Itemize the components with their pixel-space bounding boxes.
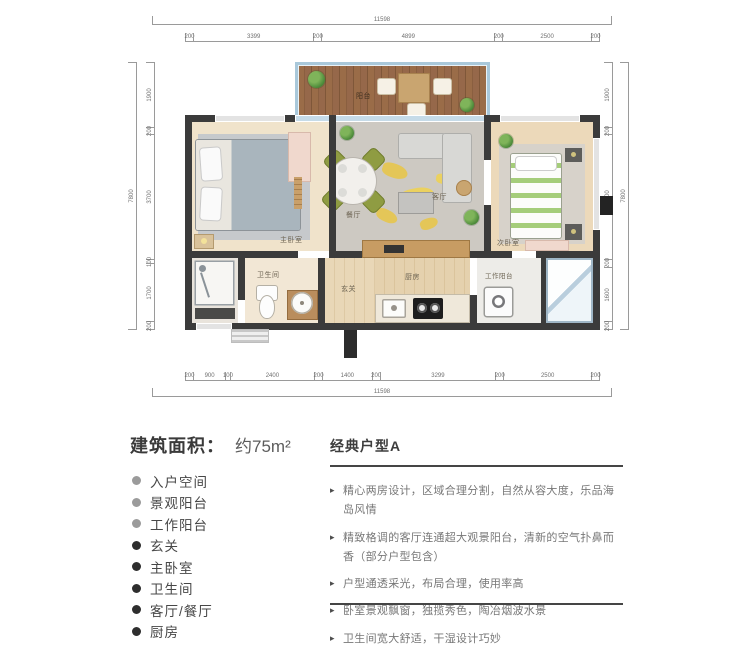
bullet-icon [132, 584, 141, 593]
nightstand-icon [565, 224, 582, 240]
bath-mat-icon [195, 308, 235, 319]
bullet-item: ▸卧室景观飘窗，独揽秀色，陶冶烟波水景 [330, 602, 623, 621]
outdoor-table-icon [398, 73, 430, 103]
list-item: 工作阳台 [132, 513, 213, 535]
floor-plan: 阳台 主卧室 [0, 0, 747, 420]
plant-icon [460, 98, 474, 112]
room-feature-list: 入户空间 景观阳台 工作阳台 玄关 主卧室 卫生间 客厅/餐厅 厨房 [132, 470, 213, 642]
wall-interior [318, 258, 325, 330]
room-label-dining: 餐厅 [346, 210, 361, 220]
wall-interior [185, 251, 298, 258]
wall-interior [329, 115, 336, 258]
room-balcony: 阳台 [295, 62, 490, 120]
bullet-text: 精致格调的客厅连通超大观景阳台，清新的空气扑鼻而香（部分户型包含） [343, 532, 614, 563]
entry-steps-icon [232, 330, 268, 342]
list-item: 入户空间 [132, 470, 213, 492]
bullet-item: ▸户型通透采光，布局合理，使用率高 [330, 575, 623, 594]
bullet-text: 卧室景观飘窗，独揽秀色，陶冶烟波水景 [343, 605, 546, 617]
unit-type-heading: 经典户型A [330, 436, 623, 467]
pillow-icon [200, 187, 222, 220]
wall-interior [536, 251, 600, 258]
coffee-table-icon [398, 192, 434, 214]
dresser-icon [525, 240, 569, 251]
list-item-label: 卫生间 [150, 578, 194, 598]
bullet-item: ▸精致格调的客厅连通超大观景阳台，清新的空气扑鼻而香（部分户型包含） [330, 529, 623, 568]
bullet-icon [132, 562, 141, 571]
plant-icon [464, 210, 479, 225]
bottom-divider [330, 603, 623, 605]
bullet-icon [132, 627, 141, 636]
arrow-bullet-icon: ▸ [330, 631, 335, 647]
window-icon [500, 115, 580, 122]
room-living-dining: 餐厅 客厅 [336, 122, 484, 251]
list-item: 卫生间 [132, 578, 213, 600]
toilet-icon [260, 296, 274, 318]
room-label-second: 次卧室 [497, 238, 520, 248]
wardrobe-icon [288, 132, 311, 182]
bullet-icon [132, 605, 141, 614]
shelf-icon [294, 177, 302, 209]
list-item: 主卧室 [132, 556, 213, 578]
sink-icon [291, 292, 313, 314]
list-item-label: 工作阳台 [150, 514, 208, 534]
wall-interior [470, 251, 512, 258]
corner-window-icon [546, 258, 593, 323]
shower-icon [196, 262, 233, 304]
room-hall: 玄关 [325, 258, 375, 323]
bed-icon [196, 140, 300, 230]
stove-icon [413, 298, 443, 319]
room-label-work-balcony: 工作阳台 [485, 270, 513, 280]
bullet-icon [132, 541, 141, 550]
list-item: 景观阳台 [132, 492, 213, 514]
room-bathroom: 卫生间 [245, 258, 318, 323]
bullet-text: 户型通透采光，布局合理，使用率高 [343, 578, 524, 590]
entry-wall-stub [344, 330, 357, 358]
wall-left [185, 115, 192, 330]
window-icon [593, 138, 600, 230]
room-shower [192, 258, 238, 323]
kitchen-counter-icon [362, 240, 470, 258]
nightstand-icon [565, 148, 582, 162]
room-kitchen: 厨房 [375, 258, 470, 323]
room-master-bedroom: 主卧室 [192, 122, 329, 251]
building-area-value: 约75m² [235, 432, 291, 457]
outdoor-cushion-icon [378, 79, 395, 94]
unit-type-card: 经典户型A ▸精心两房设计，区域合理分割，自然从容大度，乐品海岛风情 ▸精致格调… [330, 436, 623, 657]
list-item: 客厅/餐厅 [132, 599, 213, 621]
dining-table-icon [330, 158, 376, 204]
wall-bottom [185, 323, 600, 330]
pillow-icon [200, 147, 222, 180]
list-item-label: 玄关 [150, 535, 179, 555]
bullet-icon [132, 519, 141, 528]
arrow-bullet-icon: ▸ [330, 603, 335, 619]
bullet-text: 精心两房设计，区域合理分割，自然从容大度，乐品海岛风情 [343, 485, 614, 516]
arrow-bullet-icon: ▸ [330, 576, 335, 592]
bullet-icon [132, 476, 141, 485]
plant-icon [340, 126, 354, 140]
wall-interior [336, 251, 362, 258]
list-item-label: 入户空间 [150, 471, 208, 491]
room-second-bedroom: 次卧室 [491, 122, 593, 251]
sink-icon [382, 299, 406, 318]
room-label-bath: 卫生间 [257, 270, 280, 280]
list-item-label: 景观阳台 [150, 492, 208, 512]
wall-interior [238, 258, 245, 300]
list-item: 厨房 [132, 621, 213, 643]
wall-interior [484, 115, 491, 160]
pipe-shaft [600, 196, 613, 215]
arrow-bullet-icon: ▸ [330, 530, 335, 546]
window-icon [196, 323, 232, 330]
room-label-living: 客厅 [432, 192, 447, 202]
list-item-label: 厨房 [150, 621, 179, 641]
plant-icon [499, 134, 513, 148]
washer-icon [485, 288, 512, 316]
arrow-bullet-icon: ▸ [330, 483, 335, 499]
window-icon [215, 115, 285, 122]
nightstand-icon [194, 234, 214, 249]
bullet-text: 卫生间宽大舒适，干湿设计巧妙 [343, 633, 501, 645]
balcony-door-window-icon [295, 115, 490, 122]
room-label-master: 主卧室 [280, 235, 303, 245]
outdoor-cushion-icon [434, 79, 451, 94]
bed-icon [511, 154, 561, 238]
list-item: 玄关 [132, 535, 213, 557]
list-item-label: 主卧室 [150, 557, 194, 577]
room-work-balcony: 工作阳台 [477, 258, 541, 323]
room-label-balcony: 阳台 [356, 91, 371, 101]
unit-type-bullets: ▸精心两房设计，区域合理分割，自然从容大度，乐品海岛风情 ▸精致格调的客厅连通超… [330, 482, 623, 649]
bullet-item: ▸精心两房设计，区域合理分割，自然从容大度，乐品海岛风情 [330, 482, 623, 521]
bullet-icon [132, 498, 141, 507]
wall-interior [470, 295, 477, 330]
list-item-label: 客厅/餐厅 [150, 600, 213, 620]
room-label-kitchen: 厨房 [405, 272, 420, 282]
bullet-item: ▸卫生间宽大舒适，干湿设计巧妙 [330, 630, 623, 649]
side-table-icon [456, 180, 472, 196]
pillow-icon [516, 157, 556, 170]
plant-icon [308, 71, 325, 88]
room-label-hall: 玄关 [341, 284, 356, 294]
building-area: 建筑面积： 约75m² [130, 432, 291, 458]
building-area-label: 建筑面积： [130, 432, 225, 458]
